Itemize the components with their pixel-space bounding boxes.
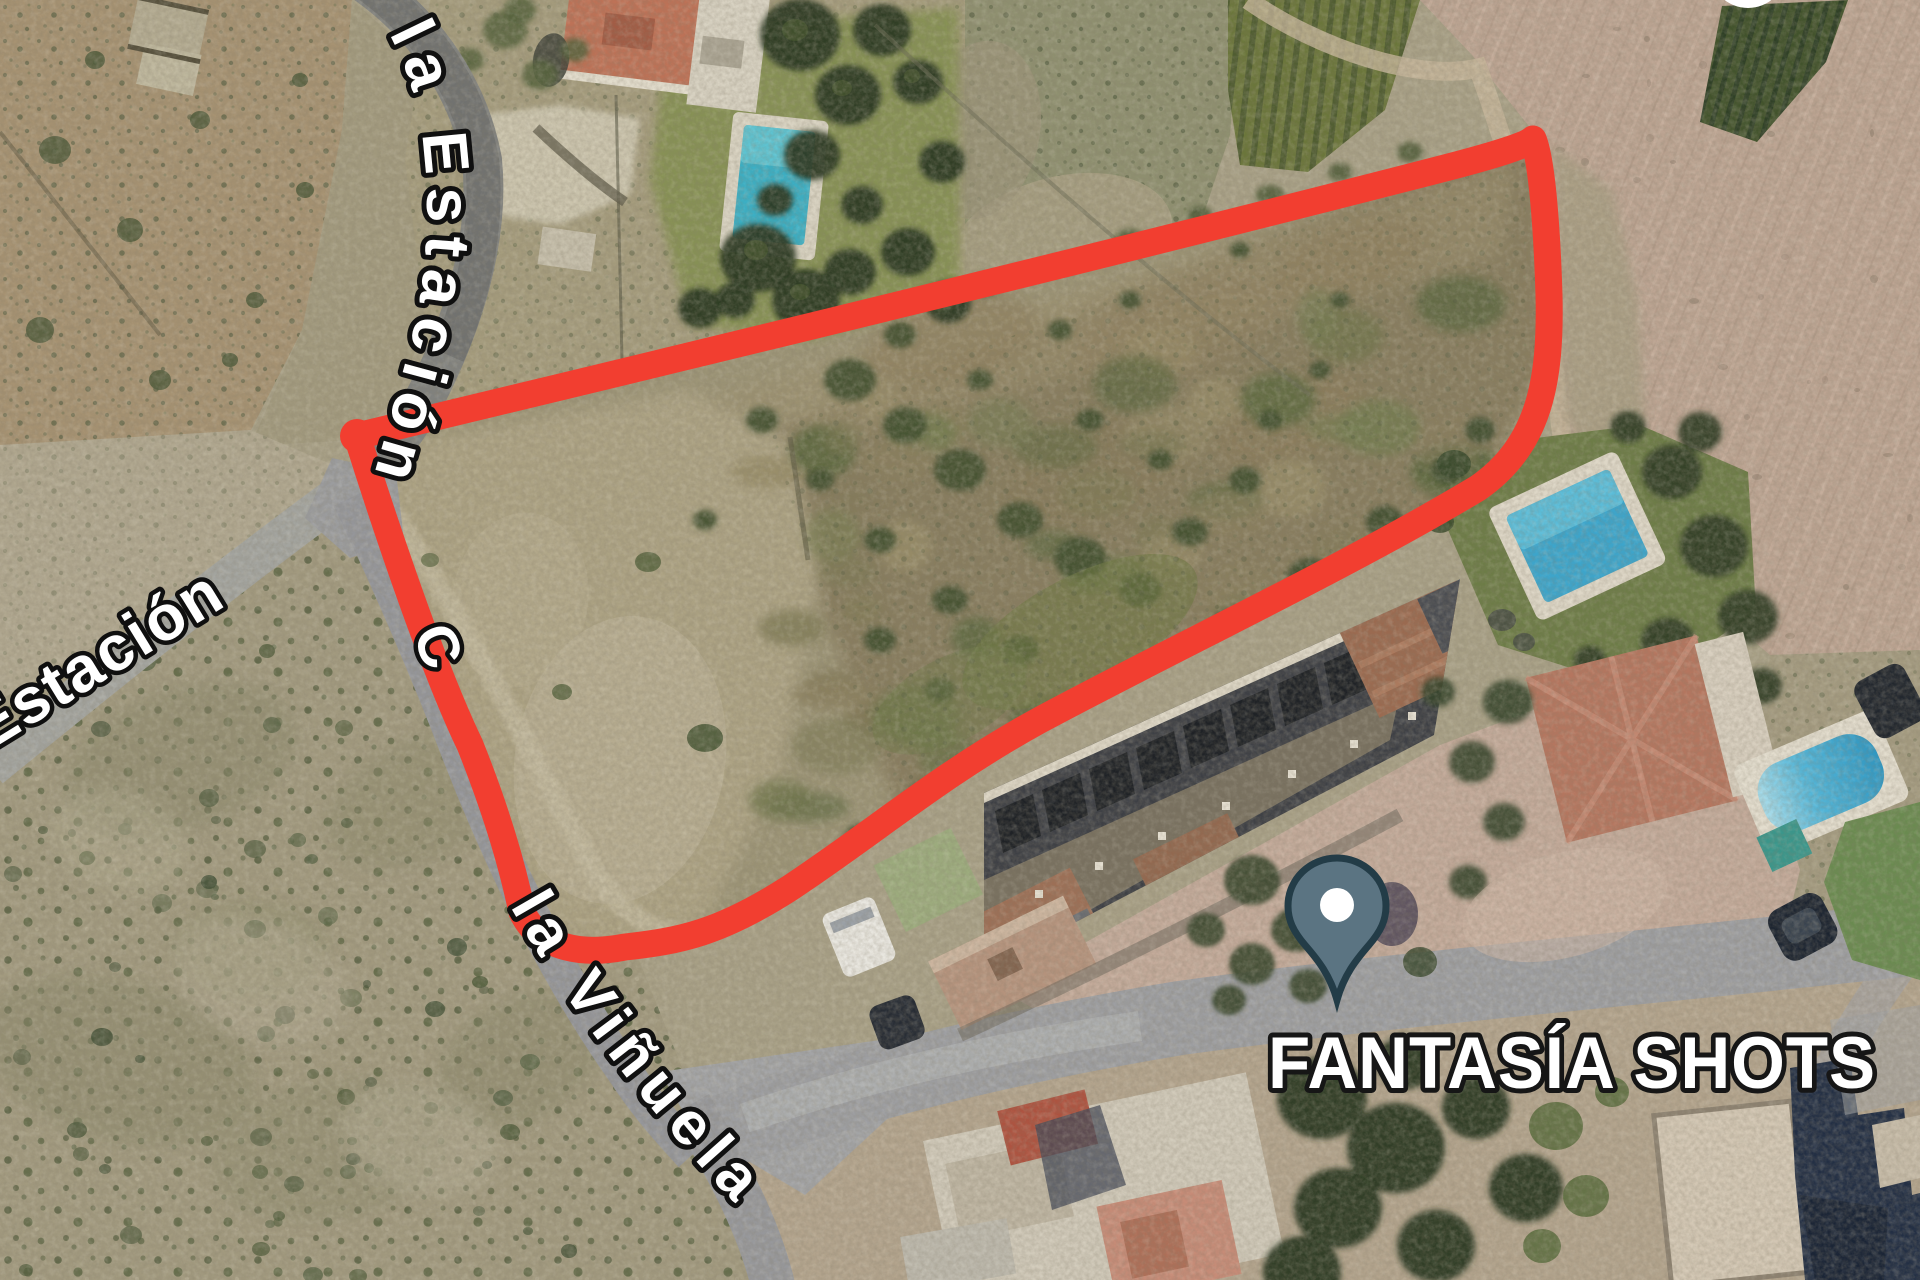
- svg-text:FANTASÍA SHOTS: FANTASÍA SHOTS: [1268, 1023, 1876, 1104]
